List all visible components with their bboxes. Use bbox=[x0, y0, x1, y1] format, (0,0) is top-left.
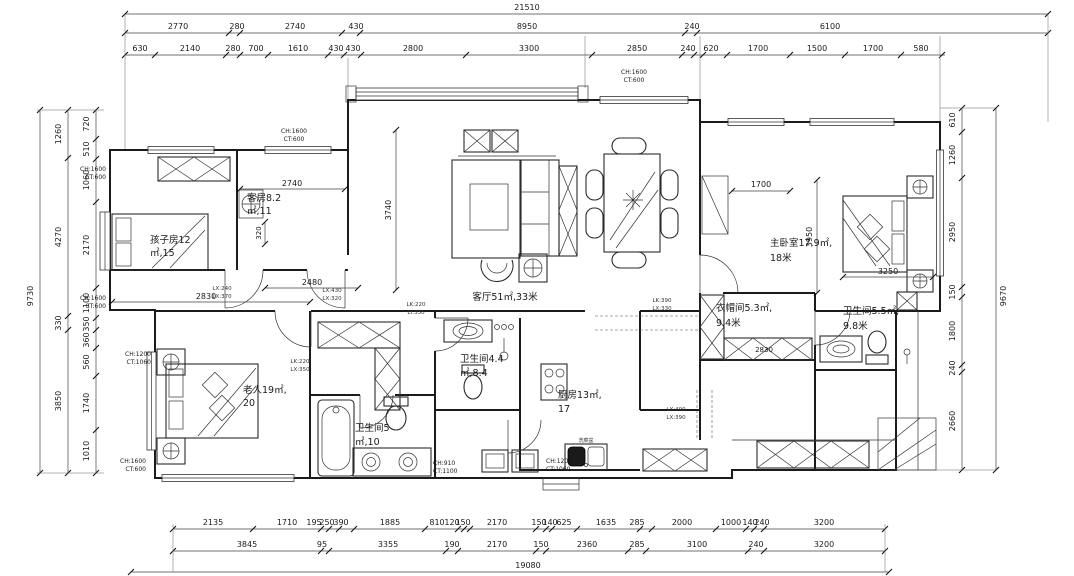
ceiling-note: CT:600 bbox=[85, 303, 106, 310]
ceiling-note: CH:1200 bbox=[125, 351, 151, 358]
dim-label: 95 bbox=[317, 540, 327, 549]
dim-label: 3250 bbox=[878, 267, 898, 276]
dim-label: 2770 bbox=[168, 22, 188, 31]
dim-label: 4270 bbox=[54, 227, 63, 247]
dim-label: 390 bbox=[333, 518, 348, 527]
dim-label: 2135 bbox=[203, 518, 223, 527]
dim-label: 1885 bbox=[380, 518, 400, 527]
dim-label: 1260 bbox=[948, 145, 957, 165]
dim-label: 1700 bbox=[863, 44, 883, 53]
dim-label: 1000 bbox=[721, 518, 741, 527]
outdoor-steps bbox=[878, 418, 936, 470]
dim-label: 350 bbox=[82, 316, 91, 331]
dim-label: 625 bbox=[556, 518, 571, 527]
leader-note: LX:400 bbox=[666, 407, 686, 413]
dim-label: 250 bbox=[319, 518, 334, 527]
dim-label: 430 bbox=[345, 44, 360, 53]
sofa bbox=[521, 160, 577, 256]
leader-note: LX:330 bbox=[652, 306, 672, 312]
dim-label: 580 bbox=[913, 44, 928, 53]
dim-label: 8950 bbox=[517, 22, 537, 31]
bath3-vanity bbox=[820, 336, 862, 362]
dim-label: 240 bbox=[680, 44, 695, 53]
dim-label: 280 bbox=[229, 22, 244, 31]
dim-label: 3850 bbox=[54, 391, 63, 411]
dim-label: 1635 bbox=[596, 518, 616, 527]
ceiling-note: CH:910 bbox=[433, 460, 455, 467]
leader-note: LX:240 bbox=[212, 286, 232, 292]
room-label-kids: ㎡,15 bbox=[150, 248, 175, 259]
elder-window-seat bbox=[157, 349, 185, 464]
leader-note: LK:220 bbox=[290, 359, 310, 365]
dim-label: 240 bbox=[754, 518, 769, 527]
dim-label: 430 bbox=[348, 22, 363, 31]
room-label-living: 客厅51㎡,33米 bbox=[472, 291, 538, 303]
floor-lamp bbox=[519, 254, 547, 282]
kitchen-sink bbox=[565, 444, 607, 470]
dim-label: 510 bbox=[82, 141, 91, 156]
dim-label: 2830 bbox=[755, 346, 773, 354]
dim-label: 2360 bbox=[577, 540, 597, 549]
dim-label: 2950 bbox=[948, 222, 957, 242]
laundry-racks bbox=[643, 441, 869, 471]
dim-label: 2170 bbox=[82, 235, 91, 255]
dim-label: 150 bbox=[948, 284, 957, 299]
entry-cabinets bbox=[482, 450, 538, 472]
dim-label: 720 bbox=[82, 116, 91, 131]
room-label-bath3: 9.8米 bbox=[843, 320, 868, 332]
dim-label: 610 bbox=[948, 112, 957, 127]
kids-wardrobe bbox=[158, 157, 230, 181]
dim-label: 430 bbox=[328, 44, 343, 53]
dim-label: 240 bbox=[748, 540, 763, 549]
dim-label: 285 bbox=[629, 518, 644, 527]
master-balcony bbox=[702, 176, 728, 234]
dim-label: 3740 bbox=[384, 200, 393, 220]
ceiling-note: CH:1200 bbox=[546, 458, 572, 465]
dim-label: 1700 bbox=[748, 44, 768, 53]
dim-label: 2000 bbox=[672, 518, 692, 527]
room-label-closet: 衣帽间5.3㎡, bbox=[716, 302, 772, 314]
dim-label: 1710 bbox=[277, 518, 297, 527]
leader-note: LK:390 bbox=[652, 298, 672, 304]
floor-plan-drawing: 21510 2770 280 2740 430 8950 240 6100 63… bbox=[0, 0, 1074, 576]
room-label-bath1: 卫生间4.4 bbox=[460, 353, 504, 365]
dim-left-total: 9730 bbox=[26, 286, 35, 306]
dim-label: 1260 bbox=[54, 124, 63, 144]
ceiling-note: CT:600 bbox=[284, 136, 305, 143]
dim-label: 6100 bbox=[820, 22, 840, 31]
room-label-guest: ㎡,11 bbox=[247, 206, 272, 217]
dim-label: 1700 bbox=[751, 180, 771, 189]
dim-label: 3100 bbox=[687, 540, 707, 549]
master-bed bbox=[843, 196, 907, 272]
leader-note: LX:350 bbox=[290, 367, 310, 373]
dim-label: 3845 bbox=[237, 540, 257, 549]
bathtub bbox=[318, 400, 354, 476]
dim-label: 3200 bbox=[814, 518, 834, 527]
dim-label: 320 bbox=[255, 226, 263, 239]
height-annotations: CH:1600 CT:600 CH:1600 CT:600 CH:1600 CT… bbox=[80, 69, 686, 475]
dim-label: 2170 bbox=[487, 518, 507, 527]
dim-label: 3300 bbox=[519, 44, 539, 53]
room-label-master: 18米 bbox=[770, 252, 792, 264]
ceiling-note: CH:1600 bbox=[80, 166, 106, 173]
ceiling-note: CT:600 bbox=[624, 77, 645, 84]
leader-note: LY:330 bbox=[407, 310, 425, 316]
shaft bbox=[897, 292, 917, 364]
dim-label: 150 bbox=[455, 518, 470, 527]
leader-note: LX:430 bbox=[322, 288, 342, 294]
room-label-kitchen: 厨房13㎡, bbox=[558, 389, 602, 401]
dim-label: 140 bbox=[542, 518, 557, 527]
bath3-toilet bbox=[866, 331, 888, 364]
double-vanity bbox=[353, 448, 431, 476]
armchair bbox=[481, 260, 513, 282]
dim-label: 2740 bbox=[285, 22, 305, 31]
dim-label: 2140 bbox=[180, 44, 200, 53]
dim-label: 2480 bbox=[302, 278, 322, 287]
leader-note: LX:390 bbox=[666, 415, 686, 421]
interior-dimensions bbox=[109, 127, 936, 305]
dim-label: 560 bbox=[82, 354, 91, 369]
dim-label: 2800 bbox=[403, 44, 423, 53]
ceiling-note: CH:1600 bbox=[120, 458, 146, 465]
dim-bottom-total: 19080 bbox=[515, 561, 540, 570]
nightstand bbox=[907, 176, 933, 292]
dim-label: 1500 bbox=[807, 44, 827, 53]
tv-cabinet bbox=[458, 130, 556, 156]
room-label-kitchen: 17 bbox=[558, 404, 570, 415]
room-label-bath1: ㎡,8.4 bbox=[460, 368, 488, 379]
ceiling-note: CT:600 bbox=[125, 466, 146, 473]
room-label-guest: 客房8.2 bbox=[247, 192, 281, 204]
ceiling-note: CT:1060 bbox=[546, 466, 571, 473]
leader-note: LX:320 bbox=[322, 296, 342, 302]
dim-label: 240 bbox=[684, 22, 699, 31]
dim-label: 360 bbox=[82, 332, 91, 347]
dim-label: 1740 bbox=[82, 393, 91, 413]
dim-right-total: 9670 bbox=[999, 286, 1008, 306]
dim-label: 620 bbox=[703, 44, 718, 53]
ceiling-note: CT:1060 bbox=[127, 359, 152, 366]
dim-label: 3355 bbox=[378, 540, 398, 549]
room-label-elder: 老人19㎡, bbox=[243, 384, 287, 396]
rug bbox=[452, 160, 520, 258]
leader-note: LK:220 bbox=[406, 302, 426, 308]
ceiling-note: CT:1100 bbox=[433, 468, 458, 475]
dim-label: 240 bbox=[948, 360, 957, 375]
ceiling-note: CH:1600 bbox=[621, 69, 647, 76]
room-label-elder: 20 bbox=[243, 398, 255, 409]
room-label-master: 主卧室17.9㎡, bbox=[770, 237, 832, 249]
room-label-bath3: 卫生间5.5㎡, bbox=[843, 305, 899, 317]
dim-label: 630 bbox=[132, 44, 147, 53]
dim-label: 1010 bbox=[82, 441, 91, 461]
ceiling-note: CT:600 bbox=[85, 174, 106, 181]
dim-label: 280 bbox=[225, 44, 240, 53]
dim-label: 150 bbox=[533, 540, 548, 549]
ceiling-note: CH:1600 bbox=[80, 295, 106, 302]
dim-label: 330 bbox=[54, 315, 63, 330]
dim-label: 3200 bbox=[814, 540, 834, 549]
dining-set bbox=[586, 138, 678, 268]
dim-label: 190 bbox=[444, 540, 459, 549]
dim-label: 2170 bbox=[487, 540, 507, 549]
ceiling-note: CH:1600 bbox=[281, 128, 307, 135]
dim-label: 2660 bbox=[948, 411, 957, 431]
dim-label: 2850 bbox=[627, 44, 647, 53]
dim-label: 700 bbox=[248, 44, 263, 53]
dim-label: 810 bbox=[429, 518, 444, 527]
room-label-closet: 9.4米 bbox=[716, 317, 741, 329]
projection-lines bbox=[595, 316, 712, 440]
sink-note: 洗菜盆 bbox=[578, 437, 593, 444]
dim-label: 285 bbox=[629, 540, 644, 549]
dim-label: 2740 bbox=[282, 179, 302, 188]
leader-note: LX:370 bbox=[212, 294, 232, 300]
dim-top-total: 21510 bbox=[514, 3, 539, 12]
furniture bbox=[112, 130, 936, 476]
walls bbox=[110, 100, 940, 478]
floor-plan-canvas: 21510 2770 280 2740 430 8950 240 6100 63… bbox=[0, 0, 1074, 576]
room-label-bath2: ㎡,10 bbox=[355, 437, 380, 448]
room-label-kids: 孩子房12 bbox=[150, 234, 191, 246]
dim-label: 1610 bbox=[288, 44, 308, 53]
room-label-bath2: 卫生间5 bbox=[355, 422, 390, 434]
dim-label: 1800 bbox=[948, 321, 957, 341]
